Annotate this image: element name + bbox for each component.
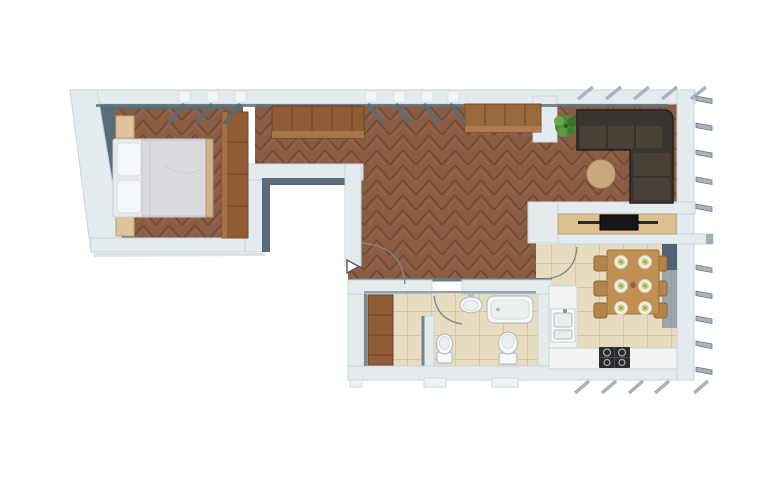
wall-tab <box>350 380 362 387</box>
window-sill-nub <box>422 91 433 102</box>
sofa-seat-cushions <box>580 126 662 148</box>
open-window-shutter <box>629 381 643 393</box>
place-setting <box>639 256 652 269</box>
sink-faucet <box>563 309 567 313</box>
corridor-wardrobe <box>272 106 364 138</box>
sideboard-front-edge <box>465 126 541 132</box>
kitchen-doorway-floor <box>536 244 552 280</box>
plant-leaf-3 <box>557 127 567 137</box>
bedroom-wardrobe-highlight <box>222 112 227 238</box>
dining-chair <box>594 281 607 296</box>
tv-console <box>558 214 676 234</box>
dining-chair <box>594 256 607 271</box>
window-sill-nub <box>366 91 377 102</box>
window-sill-nub <box>448 91 459 102</box>
corridor <box>272 106 364 138</box>
bedroom-bottom-wall <box>91 238 265 252</box>
bathroom-wardrobe <box>368 295 393 365</box>
round-rug <box>587 160 615 188</box>
balcony-bracket <box>696 204 712 212</box>
open-window-shutter <box>694 381 708 393</box>
balcony-bracket <box>696 265 712 273</box>
bathtub-drain <box>496 308 500 312</box>
wall-tab <box>492 378 518 387</box>
sink-basin-small <box>554 330 572 339</box>
bathtub <box>487 296 533 323</box>
void-inner-shadow-left <box>262 178 270 252</box>
bathroom-partition-edge <box>422 316 425 368</box>
window-sill-nub <box>179 91 190 102</box>
open-window-shutter <box>655 381 669 393</box>
plant <box>554 115 577 137</box>
place-setting <box>639 280 652 293</box>
pillow-top <box>117 143 141 176</box>
balcony-bracket <box>696 291 712 299</box>
kitchen-corner-shadow-light <box>662 270 677 328</box>
dining-chair <box>594 303 607 318</box>
wall-tab <box>424 378 446 387</box>
hall-left-wall-upper <box>345 164 361 266</box>
balcony-bracket <box>696 341 712 349</box>
place-setting <box>615 280 628 293</box>
corridor-wardrobe-front-edge <box>272 131 364 138</box>
balcony-bracket <box>696 367 712 375</box>
plant-leaf-4 <box>567 127 575 135</box>
place-setting <box>639 302 652 315</box>
divider-wall-stub <box>528 202 558 243</box>
balcony-bracket <box>696 123 712 131</box>
bathroom-top-wall-inner-edge <box>364 291 536 294</box>
void-inner-shadow-top <box>262 178 345 185</box>
open-window-shutter <box>575 381 589 393</box>
toilet-tank <box>499 353 517 364</box>
cooktop <box>599 347 630 368</box>
double-bed <box>113 139 213 217</box>
hall-floor <box>361 202 536 280</box>
kitchen-ledge <box>558 234 713 244</box>
top-wall <box>75 90 695 104</box>
blanket <box>142 140 206 216</box>
table-centerpiece <box>630 282 636 288</box>
bidet-inner <box>440 337 450 350</box>
balcony-bracket <box>696 177 712 185</box>
floor-plan-image <box>0 0 764 492</box>
tv <box>600 215 638 230</box>
balcony-bracket <box>696 150 712 158</box>
place-setting <box>615 302 628 315</box>
plant-center <box>564 124 568 128</box>
bedroom-bottom-wall-outer-shadow <box>93 253 265 257</box>
dining-set <box>594 250 667 318</box>
toilet <box>499 332 518 364</box>
ledge-end-shadow <box>706 234 713 244</box>
open-window-shutter <box>602 381 616 393</box>
plant-leaf-1 <box>554 116 564 126</box>
bathroom-partition-wall <box>423 316 434 368</box>
bedroom-wardrobe <box>222 112 248 238</box>
bathroom-west-wall-inner-edge <box>364 294 367 366</box>
place-setting <box>615 256 628 269</box>
floor-plan-svg <box>0 0 764 492</box>
sink-basin-main <box>554 313 572 327</box>
kitchen-sink <box>551 309 575 342</box>
balcony-bracket <box>696 96 712 104</box>
nightstand-left <box>116 116 134 138</box>
sideboard <box>465 104 541 132</box>
window-sill-nub <box>394 91 405 102</box>
bidet <box>437 334 453 363</box>
pillow-bottom <box>117 180 141 213</box>
window-sill-nub <box>235 91 246 102</box>
plant-leaf-2 <box>567 117 577 127</box>
toilet-inner <box>502 335 514 349</box>
basin-inner <box>464 300 479 310</box>
balcony-bracket <box>696 316 712 324</box>
bed-footboard <box>206 139 213 217</box>
window-sill-nub <box>207 91 218 102</box>
